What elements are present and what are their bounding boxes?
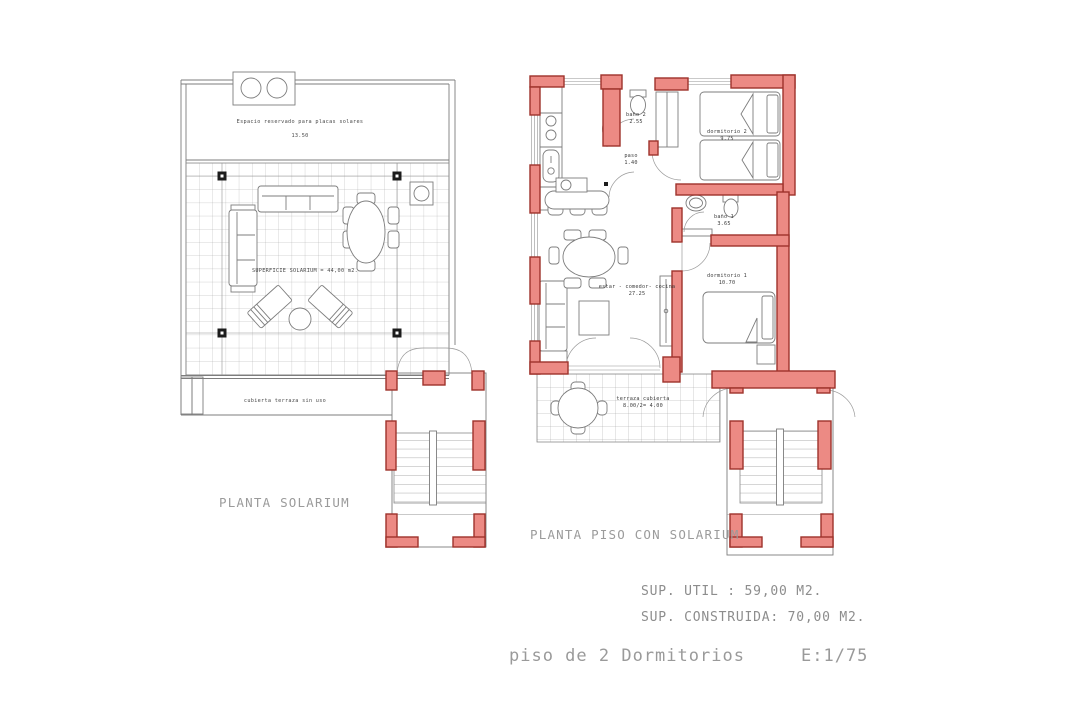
room-label-paso: paso bbox=[624, 153, 637, 159]
living-sofa bbox=[539, 281, 567, 367]
footer-scale: E:1/75 bbox=[801, 646, 868, 666]
solarium-step-box bbox=[181, 377, 192, 414]
room-area-dormitorio2: 9.75 bbox=[720, 136, 733, 142]
room-area-terraza: 8.00/2= 4.00 bbox=[623, 403, 663, 409]
living-dining-table bbox=[549, 230, 628, 288]
solarium-side-table bbox=[289, 308, 311, 330]
room-label-bano2: baño 2 bbox=[626, 112, 646, 118]
room-area-bano2: 2.55 bbox=[629, 119, 642, 125]
dormitorio1-bed bbox=[703, 292, 775, 364]
solarium-roof-box bbox=[233, 72, 295, 105]
room-area-bano1: 3.65 bbox=[717, 221, 730, 227]
solarium-planter bbox=[410, 182, 433, 205]
room-area-paso: 1.40 bbox=[624, 160, 637, 166]
piso-title: PLANTA PISO CON SOLARIUM bbox=[530, 527, 739, 542]
sup-construida: SUP. CONSTRUIDA: 70,00 M2. bbox=[641, 610, 865, 625]
floorplan-canvas: Espacio reservado para placas solares 13… bbox=[0, 0, 1080, 720]
floor-plan-page: Espacio reservado para placas solares 13… bbox=[0, 0, 1080, 720]
room-label-terraza: terraza cubierta bbox=[616, 396, 669, 402]
left-staircase bbox=[386, 348, 486, 547]
solarium-roof-note: cubierta terraza sin uso bbox=[244, 398, 326, 404]
hall-partition bbox=[682, 229, 712, 236]
stair-treads bbox=[394, 433, 486, 503]
room-label-dormitorio1: dormitorio 1 bbox=[707, 273, 747, 279]
coffee-table bbox=[579, 301, 609, 335]
wardrobe bbox=[656, 92, 678, 147]
footer-title: piso de 2 Dormitorios bbox=[509, 646, 745, 666]
dormitorio2-beds bbox=[700, 92, 780, 180]
solarium-reserved-value: 13.50 bbox=[291, 133, 308, 139]
room-area-estar: 27.25 bbox=[629, 291, 646, 297]
stair-rail bbox=[777, 429, 784, 505]
sup-util: SUP. UTIL : 59,00 M2. bbox=[641, 584, 822, 599]
room-area-dormitorio1: 10.70 bbox=[719, 280, 736, 286]
room-label-dormitorio2: dormitorio 2 bbox=[707, 129, 747, 135]
solarium-sofa-top bbox=[258, 186, 338, 212]
solarium-step-box bbox=[192, 377, 203, 414]
solarium-surface-label: SUPERFICIE SOLARIUM = 44,00 m2. bbox=[252, 268, 358, 274]
solarium-title: PLANTA SOLARIUM bbox=[219, 495, 350, 510]
stair-rail bbox=[430, 431, 437, 505]
room-label-estar: estar - comedor- cocina bbox=[599, 284, 675, 290]
room-label-bano1: baño 1 bbox=[714, 214, 734, 220]
solarium-sofa-left bbox=[229, 205, 257, 292]
solarium-reserved-note: Espacio reservado para placas solares bbox=[237, 119, 364, 125]
